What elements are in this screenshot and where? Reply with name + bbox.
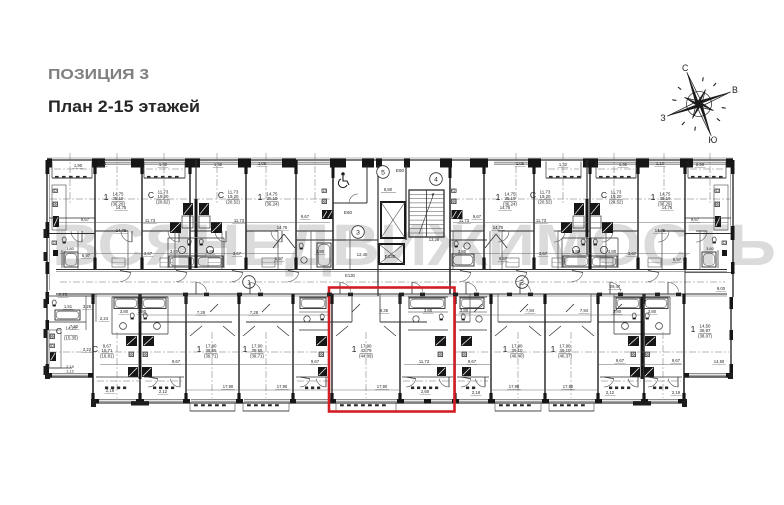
svg-text:2,19: 2,19 <box>106 388 115 393</box>
svg-text:В: В <box>732 85 738 95</box>
svg-text:3,80: 3,80 <box>648 309 657 314</box>
svg-text:2,19: 2,19 <box>672 390 681 395</box>
svg-text:(39,71): (39,71) <box>204 353 218 358</box>
svg-text:3,80: 3,80 <box>206 249 215 254</box>
svg-text:1: 1 <box>104 192 109 202</box>
svg-text:14,75: 14,75 <box>662 205 673 210</box>
svg-text:11,73: 11,73 <box>419 359 430 364</box>
svg-text:Е130: Е130 <box>345 273 355 278</box>
svg-text:3,80: 3,80 <box>572 249 581 254</box>
svg-text:2,22: 2,22 <box>83 347 92 352</box>
svg-text:1: 1 <box>247 279 251 286</box>
svg-text:Ю: Ю <box>708 135 717 145</box>
svg-text:1,32: 1,32 <box>214 162 223 167</box>
svg-text:3,80: 3,80 <box>460 308 469 313</box>
svg-text:(38,07): (38,07) <box>698 333 712 338</box>
svg-text:9,67: 9,67 <box>301 214 310 219</box>
svg-text:9,00: 9,00 <box>717 286 726 291</box>
svg-text:3,80: 3,80 <box>706 246 715 251</box>
svg-text:9,36: 9,36 <box>380 308 389 313</box>
svg-text:14,75: 14,75 <box>500 205 511 210</box>
svg-text:1: 1 <box>243 344 248 354</box>
svg-text:1,10: 1,10 <box>656 161 665 166</box>
svg-text:(20,52): (20,52) <box>156 199 170 204</box>
svg-text:С: С <box>601 190 607 200</box>
svg-text:3,80: 3,80 <box>120 309 129 314</box>
svg-text:17,90: 17,90 <box>563 384 574 389</box>
svg-text:3,80: 3,80 <box>316 249 325 254</box>
svg-text:6,97: 6,97 <box>82 253 91 258</box>
svg-text:С: С <box>218 190 224 200</box>
svg-text:14,75: 14,75 <box>655 228 666 233</box>
svg-text:(40,40): (40,40) <box>510 353 524 358</box>
svg-text:3,80: 3,80 <box>608 249 617 254</box>
svg-text:9,67: 9,67 <box>616 358 625 363</box>
svg-text:1: 1 <box>496 192 501 202</box>
svg-text:14,75: 14,75 <box>277 225 288 230</box>
svg-text:4: 4 <box>434 176 438 183</box>
svg-text:С: С <box>92 344 98 354</box>
svg-text:1,05: 1,05 <box>258 161 267 166</box>
svg-text:1: 1 <box>551 344 556 354</box>
svg-text:1,32: 1,32 <box>619 162 628 167</box>
svg-text:Е130: Е130 <box>385 254 396 259</box>
svg-text:(20,52): (20,52) <box>609 199 623 204</box>
svg-text:3: 3 <box>356 229 360 236</box>
svg-text:2,60: 2,60 <box>421 389 430 394</box>
svg-text:Е60: Е60 <box>344 210 353 215</box>
svg-text:11,73: 11,73 <box>234 218 245 223</box>
svg-text:1,32: 1,32 <box>559 162 568 167</box>
svg-text:2,50: 2,50 <box>696 162 705 167</box>
svg-text:1: 1 <box>352 344 357 354</box>
svg-text:2,24: 2,24 <box>100 316 109 321</box>
svg-text:1: 1 <box>258 192 263 202</box>
svg-text:С: С <box>682 63 689 73</box>
svg-text:17,90: 17,90 <box>277 384 288 389</box>
svg-text:(36,24): (36,24) <box>265 201 279 206</box>
svg-text:1,32: 1,32 <box>159 162 168 167</box>
svg-text:2,28: 2,28 <box>98 161 107 166</box>
svg-text:9,67: 9,67 <box>468 359 477 364</box>
svg-text:3,80: 3,80 <box>138 309 147 314</box>
svg-text:3,80: 3,80 <box>458 249 467 254</box>
svg-text:(16,81): (16,81) <box>100 353 114 358</box>
svg-text:14,50: 14,50 <box>714 359 725 364</box>
svg-text:6,97: 6,97 <box>499 256 508 261</box>
svg-text:7,94: 7,94 <box>580 308 589 313</box>
svg-text:17,90: 17,90 <box>223 384 234 389</box>
svg-text:6,97: 6,97 <box>275 256 284 261</box>
svg-text:3,25: 3,25 <box>83 304 92 309</box>
svg-text:13,28: 13,28 <box>429 237 440 242</box>
svg-text:9,67: 9,67 <box>81 217 90 222</box>
svg-text:11,73: 11,73 <box>536 218 547 223</box>
svg-text:(20,52): (20,52) <box>226 199 240 204</box>
svg-text:1: 1 <box>691 324 696 334</box>
svg-text:1: 1 <box>503 344 508 354</box>
svg-text:17,90: 17,90 <box>377 384 388 389</box>
svg-text:9,67: 9,67 <box>691 217 700 222</box>
svg-text:9,67: 9,67 <box>311 359 320 364</box>
svg-text:2,12: 2,12 <box>606 390 615 395</box>
svg-text:С: С <box>530 190 536 200</box>
svg-text:2,18: 2,18 <box>472 390 481 395</box>
svg-text:11,73: 11,73 <box>145 218 156 223</box>
svg-text:3,80: 3,80 <box>424 308 433 313</box>
svg-text:(15,35): (15,35) <box>64 335 78 340</box>
svg-text:1,51: 1,51 <box>64 304 73 309</box>
svg-text:29,47: 29,47 <box>610 284 621 289</box>
svg-text:1,12: 1,12 <box>66 369 75 374</box>
svg-text:12,40: 12,40 <box>357 252 368 257</box>
svg-text:7,28: 7,28 <box>197 310 206 315</box>
svg-text:План 2-15 этажей: План 2-15 этажей <box>48 97 200 116</box>
svg-text:7,22: 7,22 <box>70 324 79 329</box>
svg-text:Е60: Е60 <box>396 168 405 173</box>
svg-text:2,12: 2,12 <box>159 389 168 394</box>
svg-text:8,80: 8,80 <box>384 187 393 192</box>
svg-text:9,67: 9,67 <box>172 359 181 364</box>
svg-text:7,94: 7,94 <box>526 308 535 313</box>
svg-text:14,75: 14,75 <box>116 228 127 233</box>
svg-text:З: З <box>660 113 665 123</box>
svg-text:5: 5 <box>381 169 385 176</box>
svg-text:6,97: 6,97 <box>673 257 682 262</box>
svg-text:11,73: 11,73 <box>459 218 470 223</box>
svg-text:С: С <box>56 326 62 336</box>
svg-text:3,80: 3,80 <box>66 246 75 251</box>
svg-text:(39,71): (39,71) <box>250 353 264 358</box>
svg-text:С: С <box>148 190 154 200</box>
svg-text:17,90: 17,90 <box>509 384 520 389</box>
svg-text:1,05: 1,05 <box>516 161 525 166</box>
svg-text:ПОЗИЦИЯ 3: ПОЗИЦИЯ 3 <box>48 67 149 83</box>
svg-text:(40,37): (40,37) <box>558 353 572 358</box>
svg-text:7,28: 7,28 <box>250 310 259 315</box>
svg-text:(44,09): (44,09) <box>359 353 373 358</box>
svg-text:9,67: 9,67 <box>473 214 482 219</box>
svg-text:3,80: 3,80 <box>170 249 179 254</box>
svg-text:1: 1 <box>197 344 202 354</box>
svg-text:1,90: 1,90 <box>74 163 83 168</box>
svg-text:ВСЯНЕДВИЖИМОСТЬ: ВСЯНЕДВИЖИМОСТЬ <box>52 213 776 278</box>
svg-text:(20,52): (20,52) <box>538 199 552 204</box>
svg-text:9,67: 9,67 <box>672 358 681 363</box>
svg-text:14,75: 14,75 <box>493 225 504 230</box>
svg-text:14,75: 14,75 <box>116 205 127 210</box>
svg-text:1: 1 <box>651 192 656 202</box>
